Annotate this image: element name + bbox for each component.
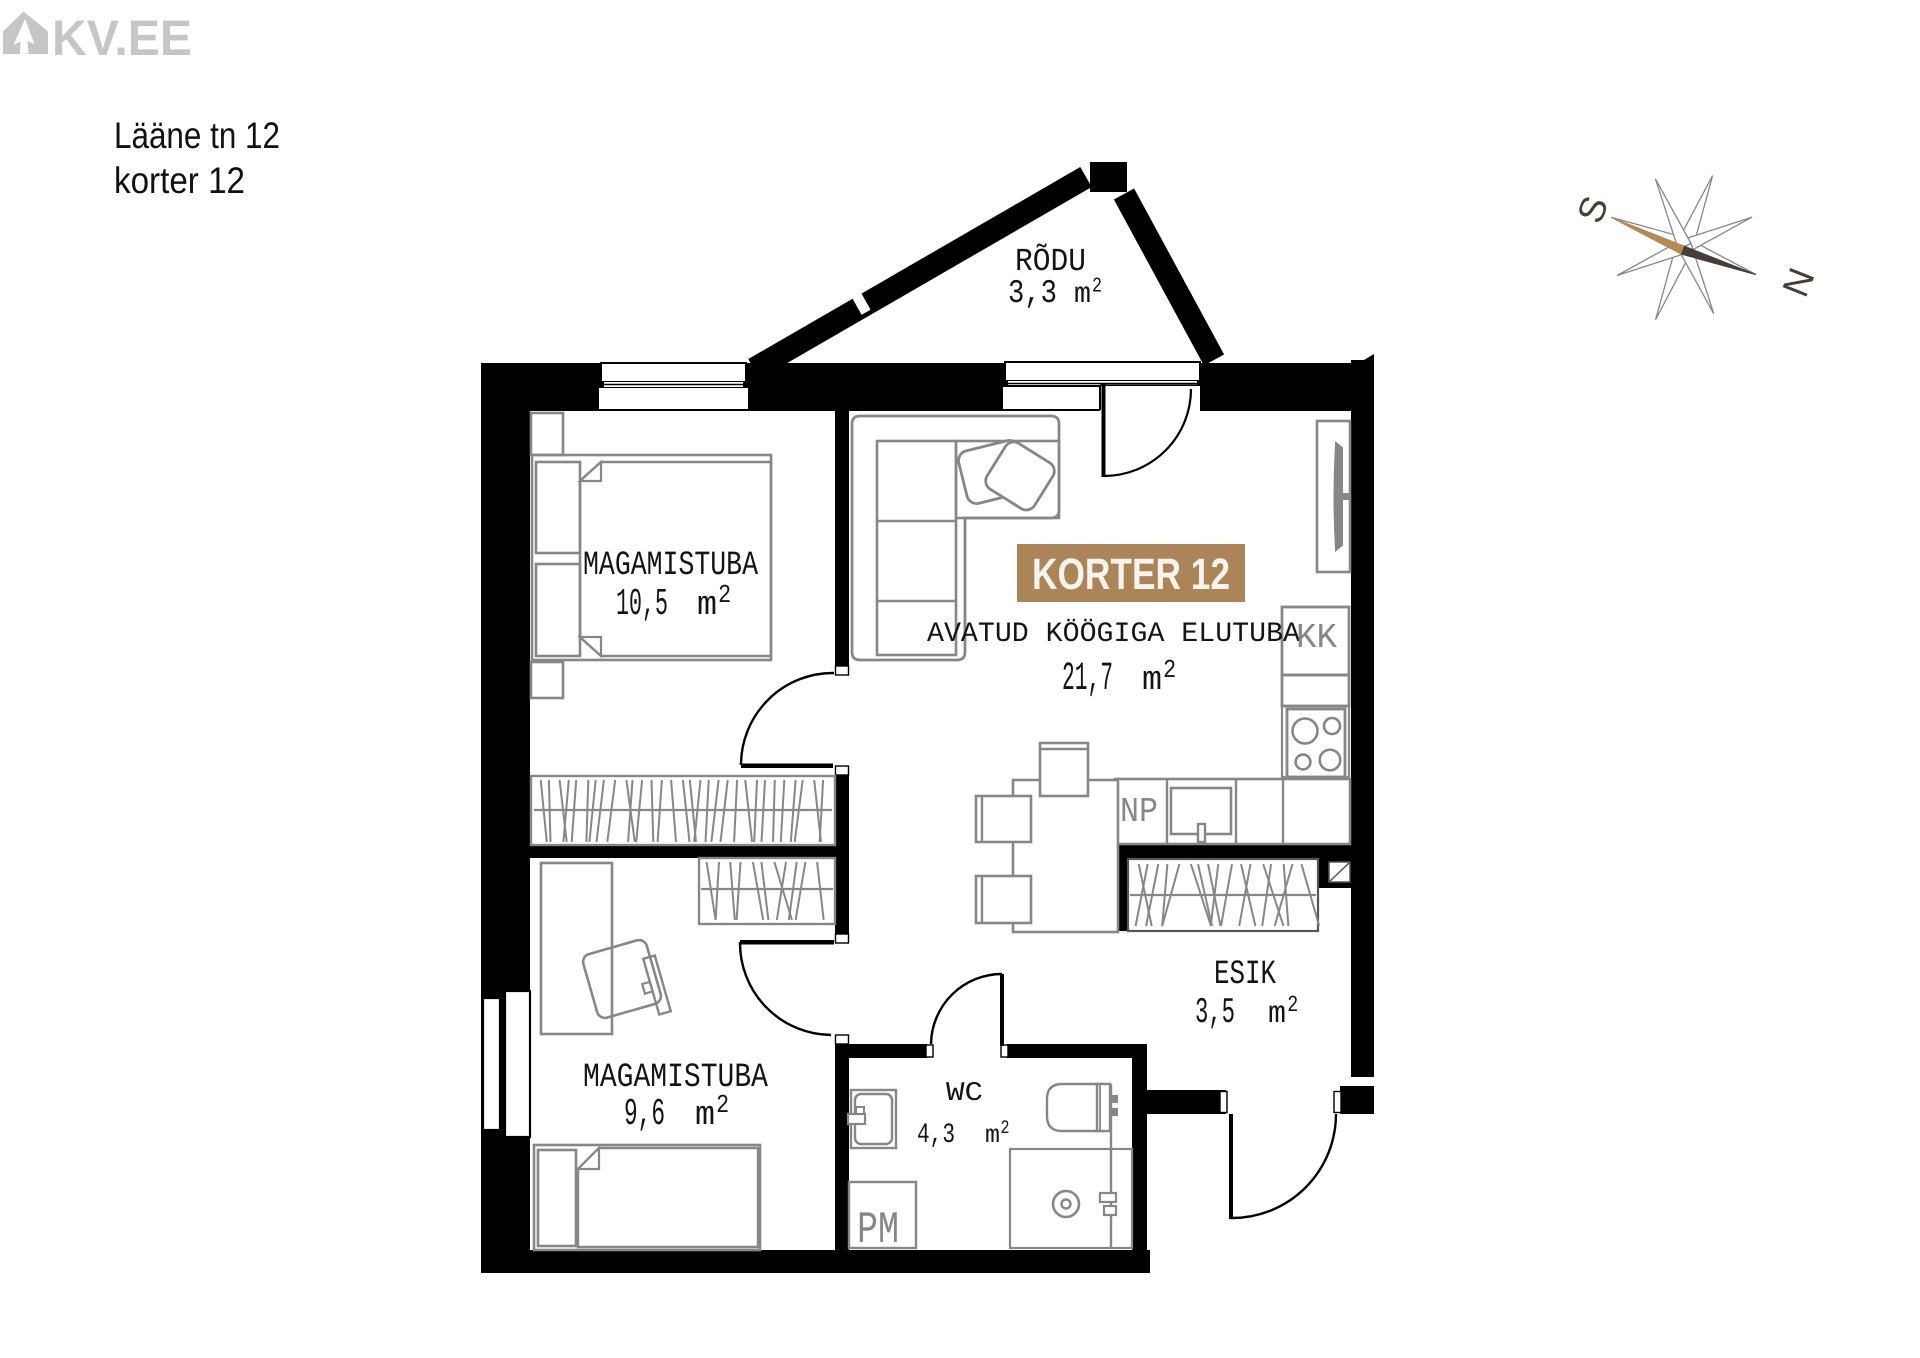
svg-text:MAGAMISTUBA: MAGAMISTUBA: [583, 547, 758, 585]
svg-text:MAGAMISTUBA: MAGAMISTUBA: [583, 1059, 768, 1097]
svg-text:PM: PM: [857, 1205, 899, 1256]
svg-text:AVATUD KÖÖGIGA ELUTUBA: AVATUD KÖÖGIGA ELUTUBA: [927, 618, 1300, 650]
svg-text:Lääne tn 12: Lääne tn 12: [114, 115, 280, 156]
svg-text:m: m: [1268, 997, 1286, 1032]
svg-text:m: m: [695, 1097, 715, 1135]
svg-text:KORTER 12: KORTER 12: [1032, 550, 1230, 599]
svg-text:2: 2: [1092, 276, 1102, 299]
svg-text:10,5: 10,5: [616, 583, 668, 626]
svg-text:WC: WC: [946, 1079, 983, 1109]
svg-text:ESIK: ESIK: [1214, 956, 1276, 994]
svg-text:m: m: [697, 587, 717, 625]
svg-text:NP: NP: [1120, 792, 1158, 832]
svg-text:KV.EE: KV.EE: [52, 10, 192, 66]
svg-text:4,3: 4,3: [917, 1120, 955, 1151]
svg-text:2: 2: [1287, 992, 1298, 1018]
svg-text:KK: KK: [1296, 618, 1337, 658]
svg-text:3,5: 3,5: [1195, 992, 1235, 1033]
svg-text:korter 12: korter 12: [114, 160, 245, 201]
svg-text:3,3: 3,3: [1008, 275, 1057, 312]
svg-text:m: m: [1074, 278, 1091, 311]
svg-text:m: m: [985, 1121, 1000, 1150]
svg-text:2: 2: [716, 1090, 729, 1120]
svg-text:2: 2: [1001, 1117, 1010, 1139]
svg-text:21,7: 21,7: [1062, 657, 1113, 702]
svg-text:2: 2: [718, 580, 731, 610]
svg-text:2: 2: [1163, 655, 1176, 685]
svg-text:m: m: [1142, 662, 1162, 700]
svg-text:9,6: 9,6: [624, 1093, 665, 1136]
